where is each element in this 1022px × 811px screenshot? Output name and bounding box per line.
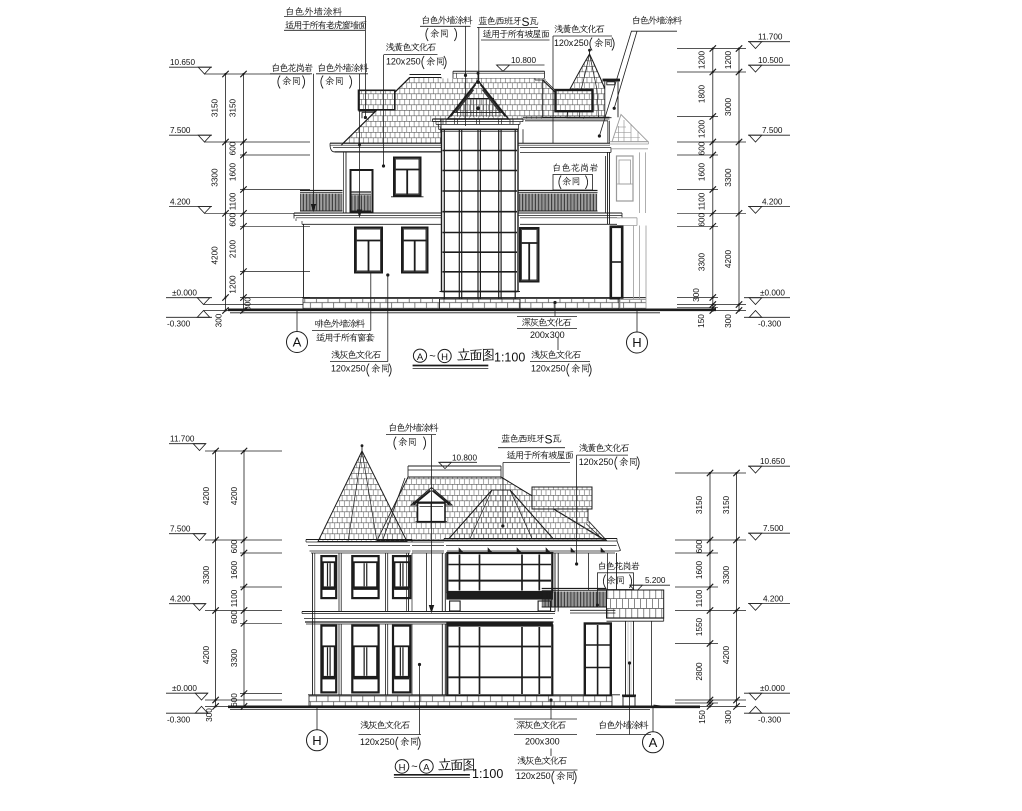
svg-text:600: 600 xyxy=(229,213,238,227)
svg-text:7.500: 7.500 xyxy=(763,524,784,533)
svg-text:-0.300: -0.300 xyxy=(167,715,191,724)
svg-text:7.500: 7.500 xyxy=(762,126,783,135)
svg-text:S: S xyxy=(522,15,530,29)
svg-text:±0.000: ±0.000 xyxy=(760,289,785,298)
svg-text:1200: 1200 xyxy=(698,119,707,138)
svg-text:4.200: 4.200 xyxy=(762,197,783,206)
svg-text:3150: 3150 xyxy=(695,495,704,514)
svg-text:0: 0 xyxy=(555,736,560,746)
svg-text:1100: 1100 xyxy=(695,589,704,607)
svg-text:~: ~ xyxy=(429,351,435,363)
svg-text:600: 600 xyxy=(230,539,239,553)
svg-text:2100: 2100 xyxy=(229,239,238,258)
svg-text:1600: 1600 xyxy=(230,560,239,579)
svg-text:±0.000: ±0.000 xyxy=(172,684,197,693)
svg-text:600: 600 xyxy=(695,539,704,553)
svg-text:0: 0 xyxy=(584,38,589,48)
svg-text:300: 300 xyxy=(692,288,701,302)
svg-text:5.200: 5.200 xyxy=(645,576,666,585)
svg-text:10.650: 10.650 xyxy=(760,457,785,466)
svg-text:-0.300: -0.300 xyxy=(758,320,782,329)
svg-text:4.200: 4.200 xyxy=(170,197,191,206)
svg-text:4200: 4200 xyxy=(722,645,731,664)
svg-text:±0.000: ±0.000 xyxy=(760,684,785,693)
svg-text:1100: 1100 xyxy=(230,589,239,607)
svg-text:4200: 4200 xyxy=(724,249,733,268)
svg-text:3150: 3150 xyxy=(722,495,731,514)
svg-text:A: A xyxy=(417,352,424,363)
svg-text:300: 300 xyxy=(215,313,224,327)
svg-text:300: 300 xyxy=(205,708,214,722)
svg-text:1600: 1600 xyxy=(695,560,704,579)
svg-text:3150: 3150 xyxy=(211,98,220,117)
svg-text:4200: 4200 xyxy=(202,645,211,664)
svg-text:H: H xyxy=(632,335,641,350)
svg-text:300: 300 xyxy=(724,710,733,724)
svg-text:10.800: 10.800 xyxy=(511,56,536,65)
svg-text:4200: 4200 xyxy=(230,486,239,505)
svg-text:11.700: 11.700 xyxy=(170,435,195,444)
svg-text:7.500: 7.500 xyxy=(170,126,191,135)
svg-text:3000: 3000 xyxy=(724,97,733,116)
svg-text:1100: 1100 xyxy=(229,192,238,210)
svg-text:600: 600 xyxy=(698,141,707,155)
svg-text:150: 150 xyxy=(697,314,706,328)
svg-text:0: 0 xyxy=(561,364,566,374)
svg-text:3300: 3300 xyxy=(202,565,211,584)
svg-text:A: A xyxy=(423,763,430,774)
svg-text:1:100: 1:100 xyxy=(494,351,525,365)
svg-text:A: A xyxy=(293,335,302,350)
svg-text:4.200: 4.200 xyxy=(170,595,191,604)
svg-text:600: 600 xyxy=(230,610,239,624)
svg-text:-0.300: -0.300 xyxy=(758,715,782,724)
svg-text:1600: 1600 xyxy=(698,162,707,181)
svg-text:4200: 4200 xyxy=(202,486,211,505)
svg-text:0: 0 xyxy=(546,771,551,781)
svg-text:±0.000: ±0.000 xyxy=(172,289,197,298)
svg-text:600: 600 xyxy=(230,693,239,707)
svg-text:~: ~ xyxy=(411,761,417,773)
svg-text:0: 0 xyxy=(608,457,613,467)
svg-text:H: H xyxy=(399,763,406,774)
svg-text:1:100: 1:100 xyxy=(472,767,503,781)
svg-text:10.500: 10.500 xyxy=(758,56,783,65)
svg-text:150: 150 xyxy=(698,710,707,724)
svg-text:4200: 4200 xyxy=(211,246,220,265)
svg-text:A: A xyxy=(649,735,658,750)
svg-text:10.800: 10.800 xyxy=(452,454,477,463)
svg-text:1200: 1200 xyxy=(724,50,733,69)
svg-text:0: 0 xyxy=(416,57,421,67)
svg-text:10.650: 10.650 xyxy=(170,58,195,67)
svg-text:3300: 3300 xyxy=(698,252,707,271)
svg-text:300: 300 xyxy=(724,314,733,328)
svg-text:7.500: 7.500 xyxy=(170,525,191,534)
svg-text:3300: 3300 xyxy=(722,565,731,584)
svg-text:3150: 3150 xyxy=(229,98,238,117)
svg-text:1600: 1600 xyxy=(229,162,238,181)
svg-text:1550: 1550 xyxy=(695,617,704,636)
svg-text:4.200: 4.200 xyxy=(763,594,784,603)
svg-text:1100: 1100 xyxy=(698,192,707,210)
svg-text:-0.300: -0.300 xyxy=(167,320,191,329)
svg-text:1800: 1800 xyxy=(698,84,707,103)
svg-text:H: H xyxy=(441,352,448,363)
svg-text:0: 0 xyxy=(361,364,366,374)
svg-text:H: H xyxy=(312,733,321,748)
svg-text:11.700: 11.700 xyxy=(758,33,783,42)
svg-text:3300: 3300 xyxy=(724,168,733,187)
svg-text:0: 0 xyxy=(560,330,565,340)
svg-text:1200: 1200 xyxy=(698,50,707,69)
svg-text:3300: 3300 xyxy=(211,168,220,187)
svg-text:600: 600 xyxy=(698,213,707,227)
svg-text:S: S xyxy=(545,432,553,446)
svg-text:2800: 2800 xyxy=(695,662,704,681)
svg-text:1200: 1200 xyxy=(229,275,238,294)
svg-text:0: 0 xyxy=(390,737,395,747)
svg-text:3300: 3300 xyxy=(230,648,239,667)
svg-text:600: 600 xyxy=(229,141,238,155)
